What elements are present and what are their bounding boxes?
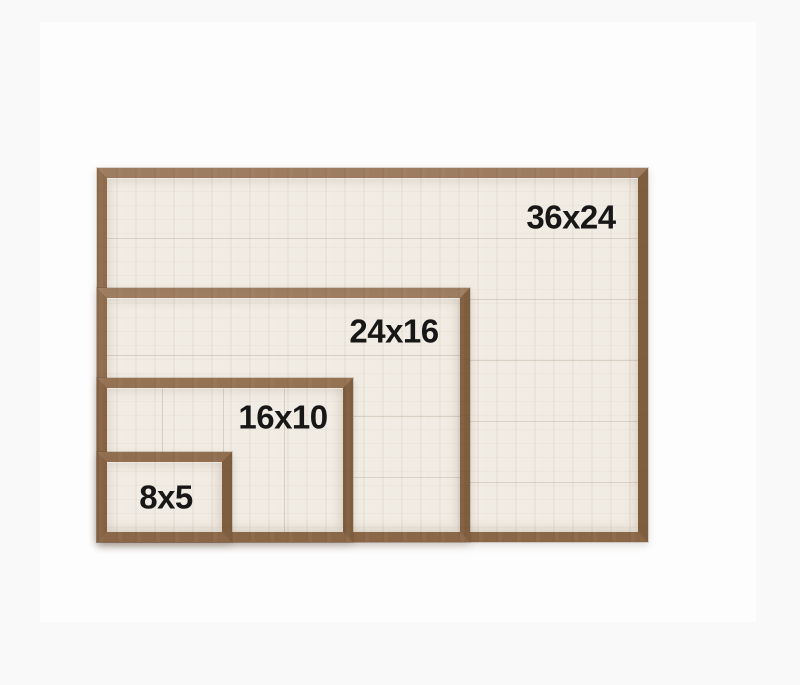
size-label-24x16: 24x16 bbox=[349, 315, 438, 348]
size-label-8x5: 8x5 bbox=[139, 481, 193, 514]
size-comparison-photo: 36x24 24x16 16x10 8x5 bbox=[0, 0, 800, 685]
size-label-16x10: 16x10 bbox=[238, 401, 327, 434]
size-label-36x24: 36x24 bbox=[526, 201, 615, 234]
